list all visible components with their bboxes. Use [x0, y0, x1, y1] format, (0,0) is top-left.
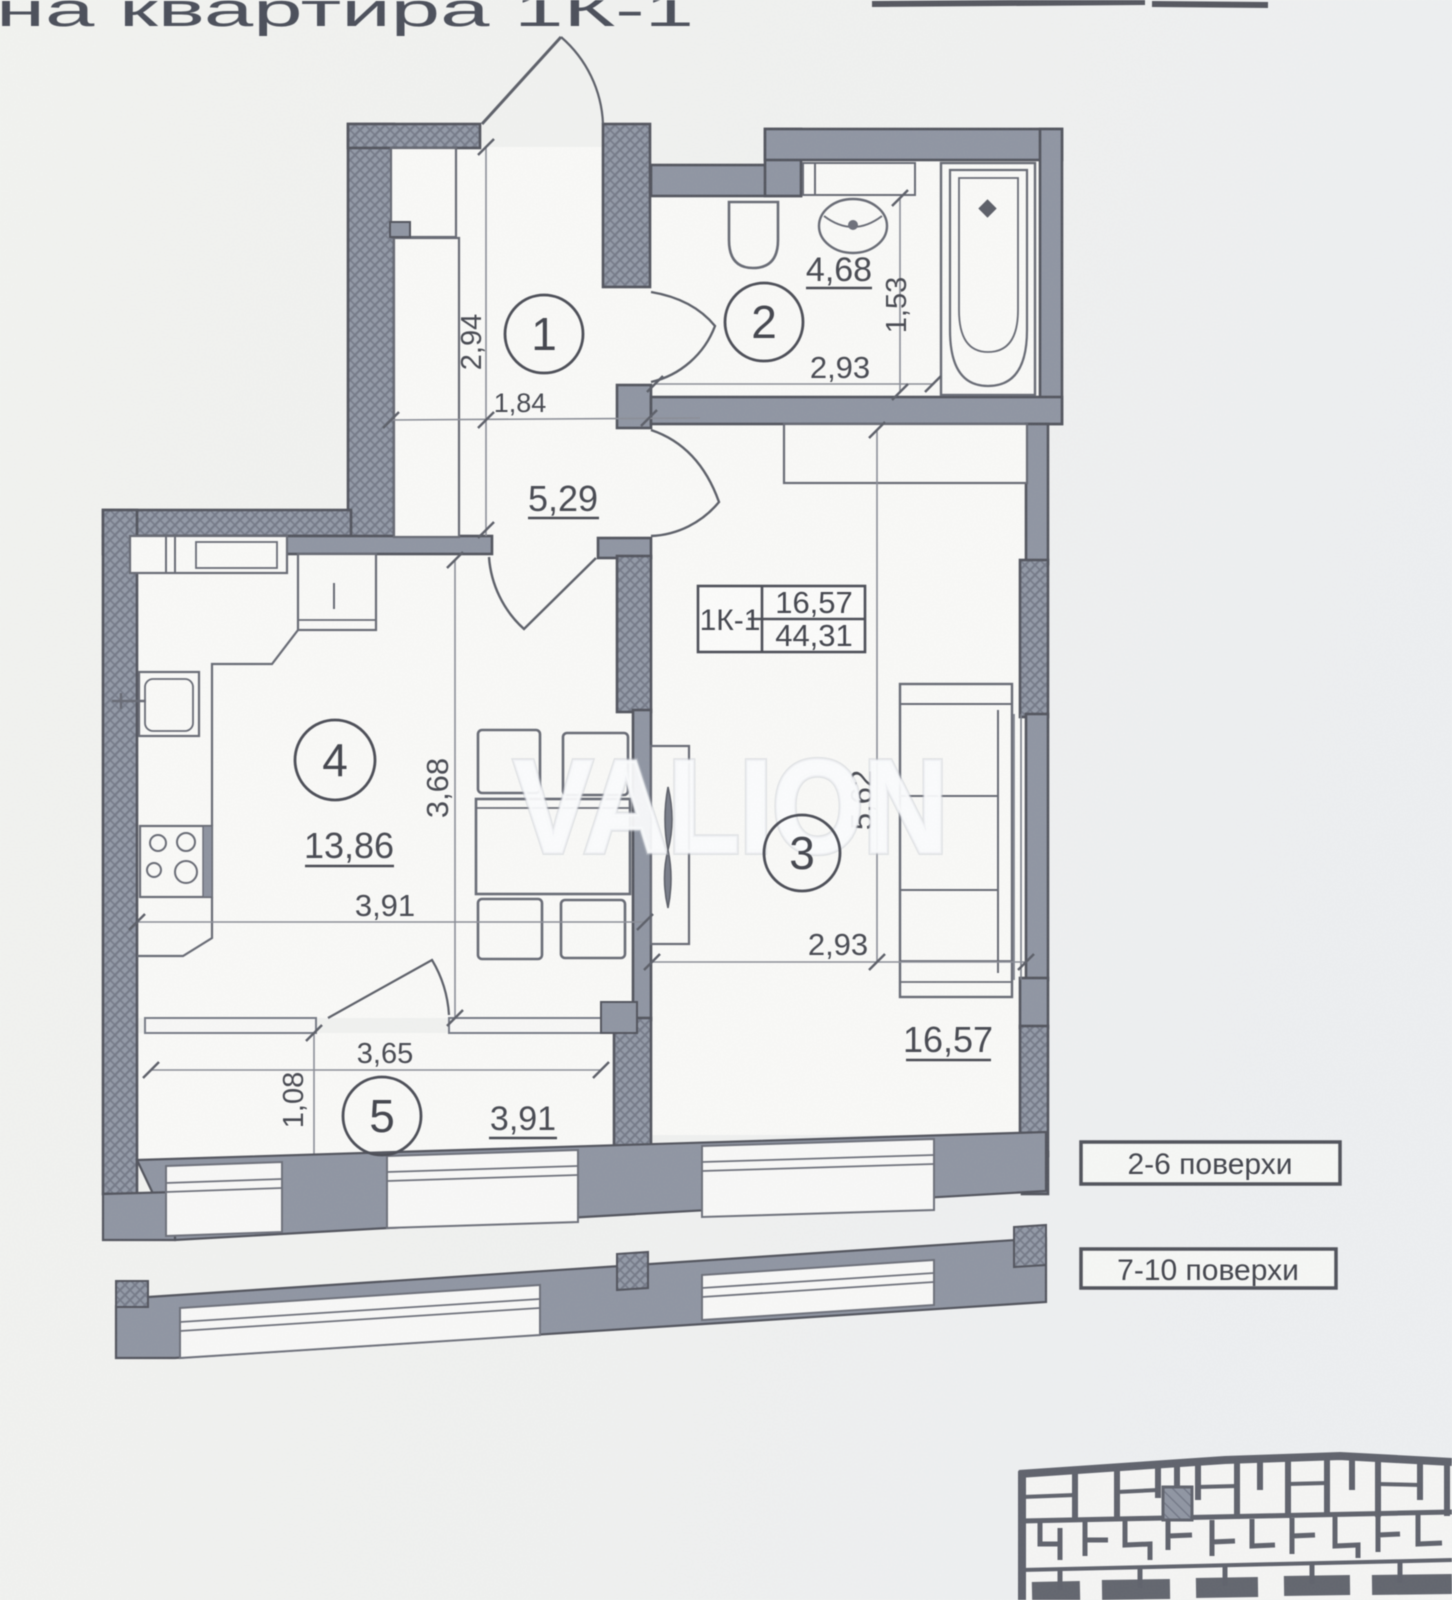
svg-text:7-10 поверхи: 7-10 поверхи	[1117, 1254, 1299, 1287]
svg-text:1,53: 1,53	[881, 277, 913, 333]
svg-text:44,31: 44,31	[775, 618, 853, 653]
svg-text:16,57: 16,57	[903, 1019, 993, 1060]
svg-text:на квартира 1К-1: на квартира 1К-1	[0, 0, 694, 36]
svg-text:3: 3	[789, 827, 815, 879]
svg-text:13,86: 13,86	[304, 825, 394, 866]
svg-text:3,68: 3,68	[420, 758, 455, 818]
svg-text:16,57: 16,57	[775, 585, 853, 620]
svg-text:VALION: VALION	[514, 733, 948, 880]
svg-text:1,84: 1,84	[494, 388, 547, 418]
svg-text:2,94: 2,94	[456, 314, 488, 370]
svg-text:5,29: 5,29	[528, 478, 598, 519]
svg-text:3,91: 3,91	[355, 888, 415, 923]
svg-text:2,93: 2,93	[808, 927, 868, 962]
svg-text:4,68: 4,68	[806, 251, 872, 289]
svg-text:4: 4	[322, 734, 348, 786]
svg-text:2,93: 2,93	[810, 350, 870, 385]
svg-text:1,08: 1,08	[278, 1072, 310, 1128]
svg-text:3,91: 3,91	[490, 1100, 556, 1138]
svg-text:3,65: 3,65	[357, 1038, 413, 1070]
svg-text:5: 5	[369, 1090, 395, 1142]
svg-text:2: 2	[751, 296, 777, 348]
svg-text:1К-1: 1К-1	[700, 604, 761, 637]
svg-text:2-6 поверхи: 2-6 поверхи	[1127, 1148, 1292, 1181]
svg-text:1: 1	[531, 308, 557, 360]
